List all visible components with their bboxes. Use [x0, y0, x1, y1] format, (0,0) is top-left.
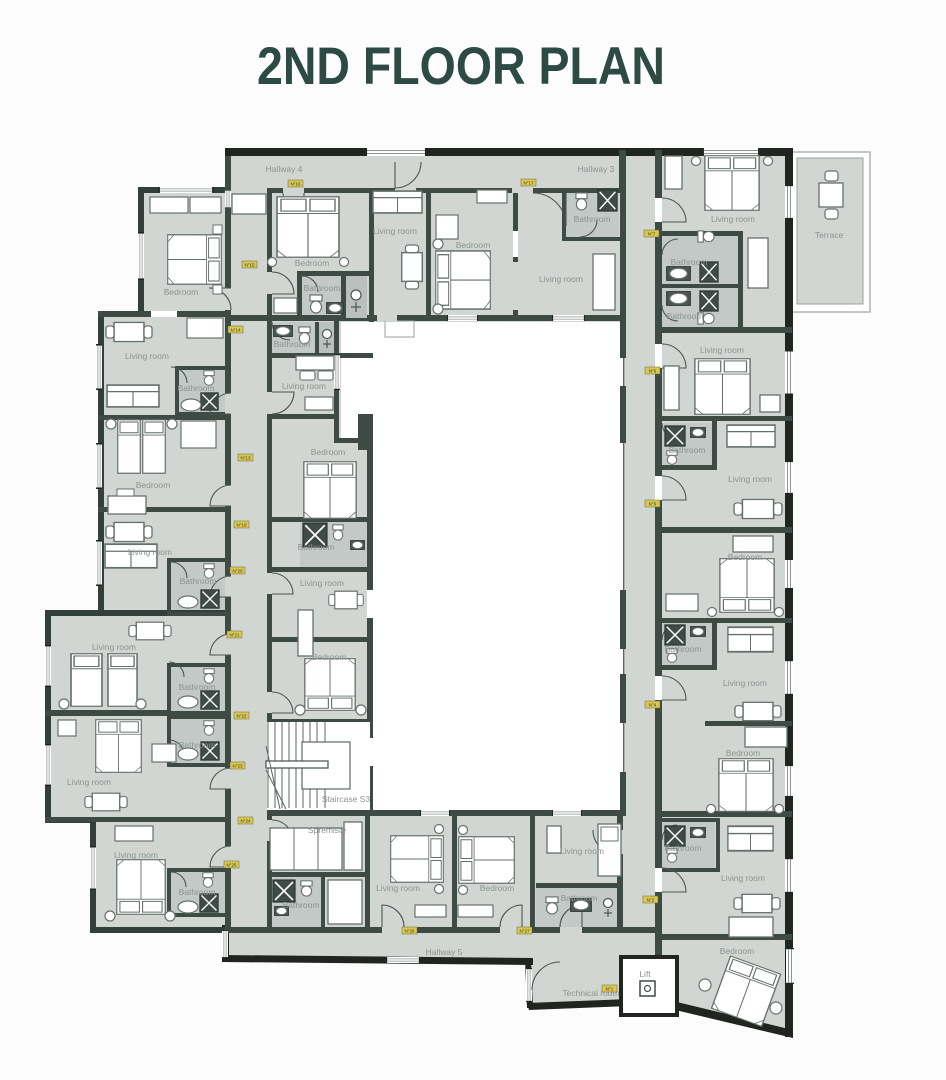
svg-text:Living room: Living room — [721, 873, 765, 883]
svg-text:Living room: Living room — [711, 214, 755, 224]
svg-text:Bathroom: Bathroom — [180, 576, 217, 586]
svg-text:Bedroom: Bedroom — [728, 552, 763, 562]
svg-text:Bedroom: Bedroom — [164, 287, 199, 297]
svg-text:Living room: Living room — [125, 351, 169, 361]
svg-text:Hallway 3: Hallway 3 — [578, 164, 615, 174]
svg-text:Bedroom: Bedroom — [456, 240, 491, 250]
svg-text:N°22: N°22 — [236, 714, 247, 719]
svg-text:Bathroom: Bathroom — [179, 887, 216, 897]
svg-text:N°15: N°15 — [244, 263, 255, 268]
svg-text:Bathroom: Bathroom — [304, 283, 341, 293]
svg-text:Living room: Living room — [92, 642, 136, 652]
svg-text:N°7: N°7 — [648, 232, 656, 237]
svg-text:Living room: Living room — [67, 777, 111, 787]
svg-text:N°17: N°17 — [523, 181, 534, 186]
svg-text:Bathroom: Bathroom — [665, 843, 702, 853]
svg-text:Living room: Living room — [723, 678, 767, 688]
svg-text:N°20: N°20 — [232, 569, 243, 574]
svg-text:Lift: Lift — [639, 969, 651, 979]
svg-text:N°14: N°14 — [230, 328, 241, 333]
svg-text:Bathroom: Bathroom — [671, 257, 708, 267]
svg-text:Bedroom: Bedroom — [726, 748, 761, 758]
svg-text:Living room: Living room — [300, 578, 344, 588]
svg-text:Terrace: Terrace — [815, 230, 844, 240]
svg-text:Bathroom: Bathroom — [574, 214, 611, 224]
svg-text:Bathroom: Bathroom — [274, 339, 311, 349]
svg-text:N°25: N°25 — [226, 863, 237, 868]
svg-text:Bedroom: Bedroom — [720, 946, 755, 956]
svg-text:Bedroom: Bedroom — [311, 447, 346, 457]
svg-text:N°6: N°6 — [649, 369, 657, 374]
svg-text:Bathroom: Bathroom — [561, 893, 598, 903]
svg-text:N°1: N°1 — [606, 987, 614, 992]
svg-text:Bathroom: Bathroom — [179, 740, 216, 750]
svg-text:N°24: N°24 — [240, 819, 251, 824]
svg-text:Hallway 5: Hallway 5 — [426, 947, 463, 957]
svg-text:Bathroom: Bathroom — [667, 311, 704, 321]
svg-text:Living room: Living room — [539, 274, 583, 284]
svg-text:Living room: Living room — [728, 474, 772, 484]
svg-text:Bedroom: Bedroom — [295, 258, 330, 268]
svg-text:Living room: Living room — [700, 345, 744, 355]
svg-text:Bathroom: Bathroom — [298, 542, 335, 552]
svg-text:Hallway 4: Hallway 4 — [266, 164, 303, 174]
svg-text:2ND FLOOR PLAN: 2ND FLOOR PLAN — [257, 37, 665, 96]
svg-text:Living room: Living room — [114, 850, 158, 860]
svg-text:Living room: Living room — [376, 883, 420, 893]
svg-text:N°19: N°19 — [236, 523, 247, 528]
svg-text:Bathroom: Bathroom — [283, 900, 320, 910]
svg-text:N°16: N°16 — [290, 182, 301, 187]
svg-text:N°4: N°4 — [649, 703, 657, 708]
svg-text:Spremište: Spremište — [308, 825, 347, 835]
svg-text:N°2: N°2 — [647, 898, 655, 903]
svg-text:Staircase S3: Staircase S3 — [322, 794, 370, 804]
svg-text:Bedroom: Bedroom — [480, 883, 515, 893]
svg-text:Bathroom: Bathroom — [179, 682, 216, 692]
svg-text:N°13: N°13 — [240, 456, 251, 461]
svg-text:Bedroom: Bedroom — [136, 480, 171, 490]
svg-text:N°21: N°21 — [229, 633, 240, 638]
svg-text:N°23: N°23 — [232, 764, 243, 769]
svg-text:Bathroom: Bathroom — [178, 383, 215, 393]
svg-text:Bedroom: Bedroom — [312, 652, 347, 662]
svg-text:Living room: Living room — [373, 226, 417, 236]
svg-text:Bathroom: Bathroom — [665, 644, 702, 654]
svg-text:Living room: Living room — [128, 547, 172, 557]
svg-text:Living room: Living room — [560, 846, 604, 856]
svg-text:Bathroom: Bathroom — [669, 445, 706, 455]
svg-text:N°26: N°26 — [404, 929, 415, 934]
svg-text:N°27: N°27 — [519, 929, 530, 934]
svg-text:Living room: Living room — [282, 381, 326, 391]
svg-text:N°5: N°5 — [649, 502, 657, 507]
